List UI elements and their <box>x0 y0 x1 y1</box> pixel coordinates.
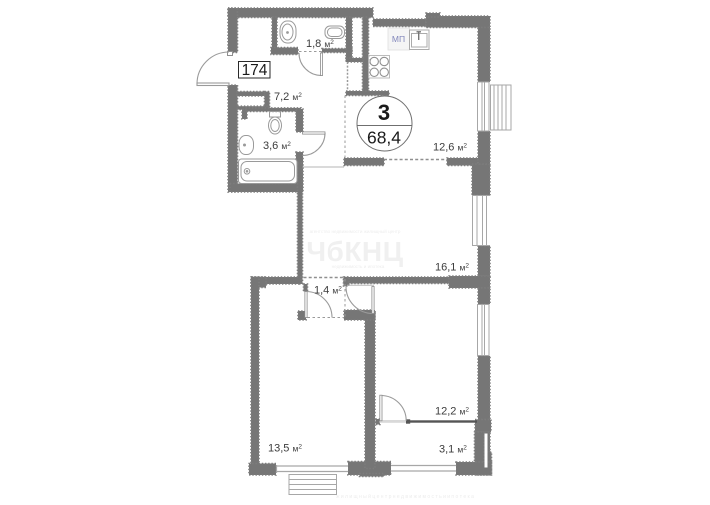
svg-text:1,8 м2: 1,8 м2 <box>306 38 334 50</box>
svg-text:13,5 м2: 13,5 м2 <box>268 443 302 455</box>
svg-text:1,4 м2: 1,4 м2 <box>314 285 342 297</box>
svg-text:174: 174 <box>242 62 268 79</box>
svg-text:3,6 м2: 3,6 м2 <box>263 140 291 152</box>
svg-text:агентство недвижимости жилищны: агентство недвижимости жилищный центр <box>310 228 401 234</box>
svg-text:ЧбКНЦ: ЧбКНЦ <box>306 236 403 267</box>
svg-text:МП: МП <box>392 34 405 44</box>
svg-text:3: 3 <box>378 100 390 125</box>
svg-text:12,2 м2: 12,2 м2 <box>435 406 469 418</box>
svg-text:16,1 м2: 16,1 м2 <box>435 262 469 274</box>
svg-text:7,2 м2: 7,2 м2 <box>274 91 302 103</box>
svg-text:ж и л и щ н ы й ц е н т р: ж и л и щ н ы й ц е н т р н е д в и ж и … <box>336 493 474 500</box>
svg-text:3,1 м2: 3,1 м2 <box>439 444 467 456</box>
svg-text:68,4: 68,4 <box>367 128 401 148</box>
svg-text:недвижимость и ипотека: недвижимость и ипотека <box>332 264 385 269</box>
svg-text:12,6 м2: 12,6 м2 <box>433 142 467 154</box>
